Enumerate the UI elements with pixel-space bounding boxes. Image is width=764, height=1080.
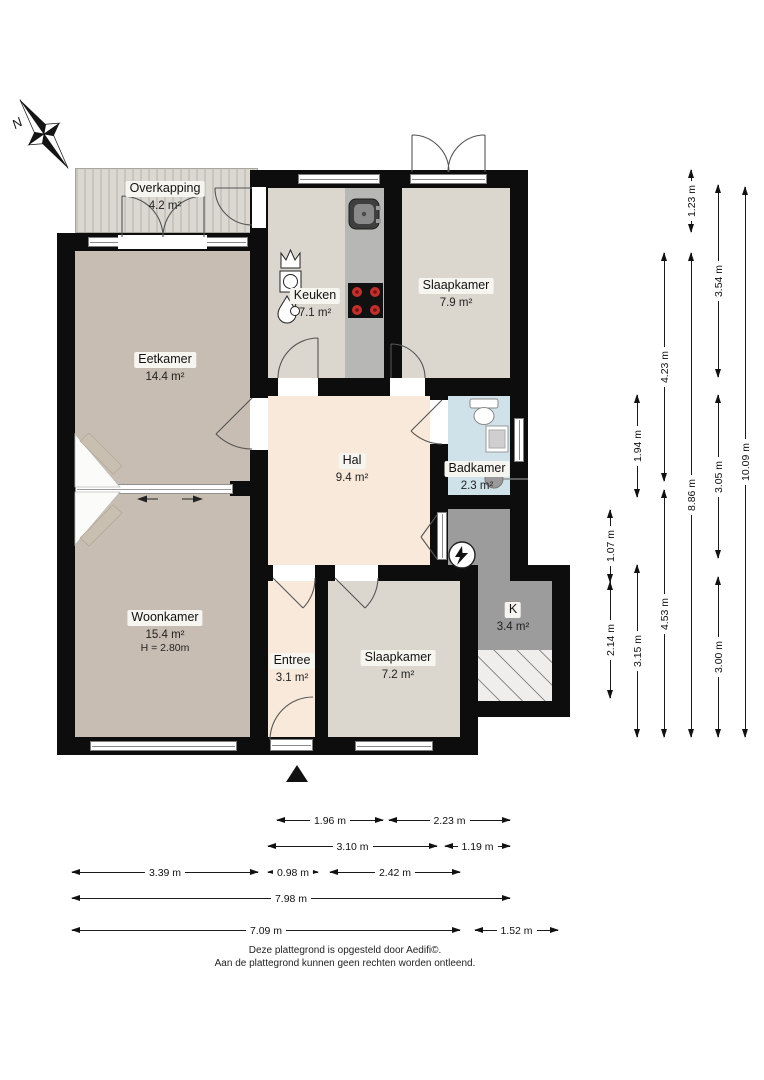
wall-kast-right <box>552 565 570 717</box>
room-area: 7.2 m² <box>361 668 436 682</box>
footer-disclaimer: Deze plattegrond is opgesteld door Aedif… <box>215 945 476 970</box>
label-overkapping: Overkapping 4.2 m² <box>126 178 205 213</box>
room-name: Badkamer <box>445 461 510 477</box>
dimension-label: 2.23 m <box>429 815 469 827</box>
window-keuken-top <box>298 174 380 184</box>
door-opening-keuken-overkapping <box>252 187 266 228</box>
dimension-label: 10.09 m <box>740 439 752 485</box>
dimension-label: 3.10 m <box>332 841 372 853</box>
room-area: 15.4 m² <box>127 628 202 642</box>
dimension-label: 4.23 m <box>659 347 671 387</box>
label-entree: Entree 3.1 m² <box>270 650 315 685</box>
dimension-line: 3.39 m <box>72 872 258 873</box>
dimension-label: 3.15 m <box>632 631 644 671</box>
dimension-line: 1.07 m <box>610 510 611 582</box>
door-opening-entree-hal <box>273 565 315 581</box>
room-name: Eetkamer <box>134 352 196 368</box>
dimension-label: 7.98 m <box>271 893 311 905</box>
label-slaapkamer-2: Slaapkamer 7.2 m² <box>361 647 436 682</box>
room-name: Entree <box>270 653 315 669</box>
door-opening-eetkamer-hal <box>250 398 268 450</box>
door-opening-keuken-hal <box>278 378 318 396</box>
room-ceiling-height: H = 2.80m <box>127 642 202 655</box>
dimension-line: 3.10 m <box>268 846 437 847</box>
dimension-line: 3.00 m <box>718 577 719 737</box>
floorplan-page: N <box>0 0 764 1080</box>
dimension-label: 1.96 m <box>310 815 350 827</box>
dimension-label: 1.52 m <box>496 925 536 937</box>
dimension-line: 7.98 m <box>72 898 510 899</box>
dimension-label: 2.42 m <box>375 867 415 879</box>
dimension-line: 3.15 m <box>637 565 638 737</box>
front-door <box>270 739 313 751</box>
dimension-label: 4.53 m <box>659 593 671 633</box>
dimension-label: 3.00 m <box>713 637 725 677</box>
dimension-label: 3.39 m <box>145 867 185 879</box>
dimension-line: 3.54 m <box>718 185 719 377</box>
dimension-label: 1.19 m <box>457 841 497 853</box>
room-area: 2.3 m² <box>445 479 510 493</box>
dimension-line: 2.23 m <box>389 820 510 821</box>
door-opening-overkapping-french <box>118 235 207 249</box>
dimension-line: 1.94 m <box>637 395 638 497</box>
wall-left-exterior <box>57 233 75 755</box>
room-name: Slaapkamer <box>419 278 494 294</box>
dimension-line: 8.86 m <box>691 253 692 737</box>
door-opening-badkamer <box>430 400 448 444</box>
dimension-label: 8.86 m <box>686 475 698 515</box>
sliding-divider-eetkamer-woonkamer <box>75 484 233 494</box>
dimension-line: 1.19 m <box>445 846 510 847</box>
entrance-triangle-icon <box>286 765 308 782</box>
room-area: 14.4 m² <box>134 370 196 384</box>
dimension-label: 7.09 m <box>246 925 286 937</box>
dimension-label: 1.94 m <box>632 426 644 466</box>
wall-keuken-slaapkamer1 <box>384 170 402 393</box>
room-name: Hal <box>339 453 366 469</box>
dimension-line: 4.23 m <box>664 253 665 481</box>
room-name: Overkapping <box>126 181 205 197</box>
dimension-label: 3.54 m <box>713 261 725 301</box>
footer-line-1: Deze plattegrond is opgesteld door Aedif… <box>215 945 476 958</box>
label-woonkamer: Woonkamer 15.4 m² H = 2.80m <box>127 607 202 656</box>
room-area: 9.4 m² <box>336 471 369 485</box>
dimension-line: 1.52 m <box>475 930 558 931</box>
wall-center-vertical <box>250 170 268 755</box>
dimension-label: 1.07 m <box>605 526 617 566</box>
door-opening-slaapkamer2-hal <box>335 565 378 581</box>
label-kast: K 3.4 m² <box>497 599 530 634</box>
footer-line-2: Aan de plattegrond kunnen geen rechten w… <box>215 958 476 971</box>
room-area: 7.1 m² <box>290 306 340 320</box>
dimension-line: 7.09 m <box>72 930 460 931</box>
compass-north-label: N <box>9 114 25 132</box>
wall-entree-slaapkamer2 <box>315 581 328 737</box>
room-area: 3.4 m² <box>497 620 530 634</box>
door-opening-slaapkamer1-hal <box>390 378 425 396</box>
room-name: K <box>505 602 521 618</box>
label-eetkamer: Eetkamer 14.4 m² <box>134 349 196 384</box>
dimension-line: 0.98 m <box>268 872 318 873</box>
dimension-line: 4.53 m <box>664 490 665 737</box>
window-woonkamer-bottom <box>90 741 237 751</box>
wall-divider-stub <box>230 481 250 496</box>
dimension-label: 3.05 m <box>713 456 725 496</box>
dimension-line: 10.09 m <box>745 187 746 737</box>
room-name: Woonkamer <box>127 610 202 626</box>
dimension-line: 1.96 m <box>277 820 383 821</box>
room-area: 4.2 m² <box>126 199 205 213</box>
label-keuken: Keuken 7.1 m² <box>290 285 340 320</box>
dimension-label: 1.23 m <box>686 181 698 221</box>
room-name: Keuken <box>290 288 340 304</box>
dimension-line: 2.14 m <box>610 582 611 698</box>
dimension-line: 2.42 m <box>330 872 460 873</box>
wall-kast-bottom <box>460 701 570 717</box>
dimension-line: 3.05 m <box>718 395 719 558</box>
wall-slaapkamer2-right <box>460 565 478 755</box>
room-name: Slaapkamer <box>361 650 436 666</box>
window-slaapkamer2-bottom <box>355 741 433 751</box>
label-slaapkamer-1: Slaapkamer 7.9 m² <box>419 275 494 310</box>
dimension-line: 1.23 m <box>691 170 692 232</box>
window-badkamer-right <box>514 418 524 462</box>
room-area: 3.1 m² <box>270 671 315 685</box>
kast-hatched-floor <box>478 650 552 701</box>
wall-badkamer-bottom <box>430 495 510 509</box>
wall-right-exterior <box>510 170 528 565</box>
window-slaapkamer1-top <box>410 174 487 184</box>
dimension-label: 2.14 m <box>605 620 617 660</box>
kitchen-counter <box>345 188 384 378</box>
dimension-label: 0.98 m <box>273 867 313 879</box>
meterkast-door <box>437 512 447 560</box>
compass-icon: N <box>4 89 83 180</box>
room-area: 7.9 m² <box>419 296 494 310</box>
label-badkamer: Badkamer 2.3 m² <box>445 458 510 493</box>
label-hal: Hal 9.4 m² <box>336 450 369 485</box>
